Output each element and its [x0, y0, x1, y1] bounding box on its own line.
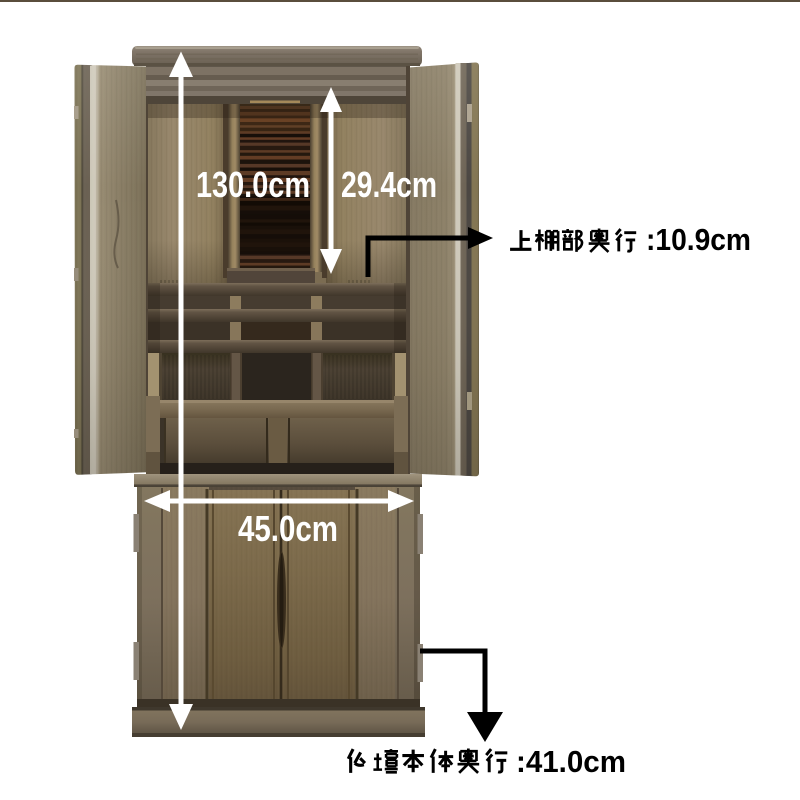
- svg-text:29.4cm: 29.4cm: [341, 164, 437, 205]
- svg-text::41.0cm: :41.0cm: [516, 744, 626, 779]
- svg-text:130.0cm: 130.0cm: [196, 164, 310, 205]
- svg-text:45.0cm: 45.0cm: [238, 508, 338, 549]
- svg-text::10.9cm: :10.9cm: [646, 222, 751, 257]
